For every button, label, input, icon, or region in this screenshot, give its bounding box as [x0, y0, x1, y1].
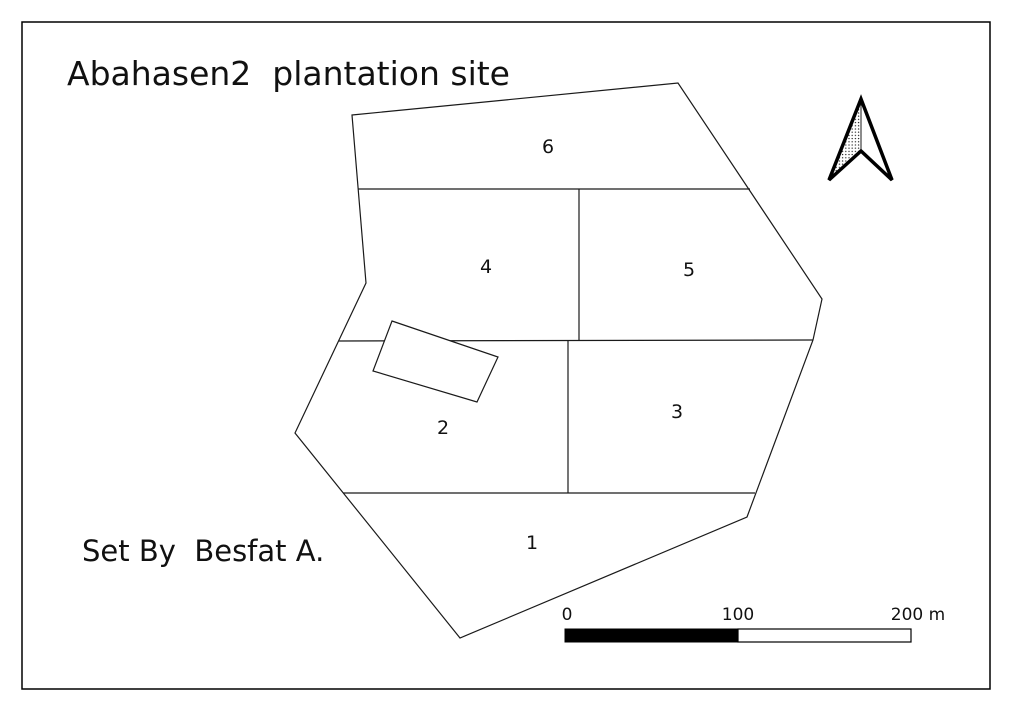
- plantation-boundary: [295, 83, 822, 638]
- scale-bar-white-segment: [738, 629, 911, 642]
- credit-text: Set By Besfat A.: [82, 534, 324, 568]
- scale-bar: 0 100 200 m: [562, 605, 946, 642]
- scale-tick-0: 0: [562, 605, 573, 625]
- map-layout-page: Abahasen2 plantation site Set By Besfat …: [0, 0, 1024, 724]
- scale-bar-black-segment: [565, 629, 738, 642]
- north-arrow-icon: [829, 99, 892, 180]
- parcel-label-2: 2: [437, 417, 449, 439]
- scale-tick-200m: 200 m: [891, 605, 945, 625]
- parcel-label-1: 1: [526, 532, 538, 554]
- map-title: Abahasen2 plantation site: [67, 54, 510, 93]
- plantation-map-svg: Abahasen2 plantation site Set By Besfat …: [0, 0, 1024, 724]
- parcel-label-6: 6: [542, 136, 554, 158]
- parcel-label-4: 4: [480, 256, 492, 278]
- scale-tick-100: 100: [722, 605, 754, 625]
- parcel-label-5: 5: [683, 259, 695, 281]
- parcel-label-3: 3: [671, 401, 683, 423]
